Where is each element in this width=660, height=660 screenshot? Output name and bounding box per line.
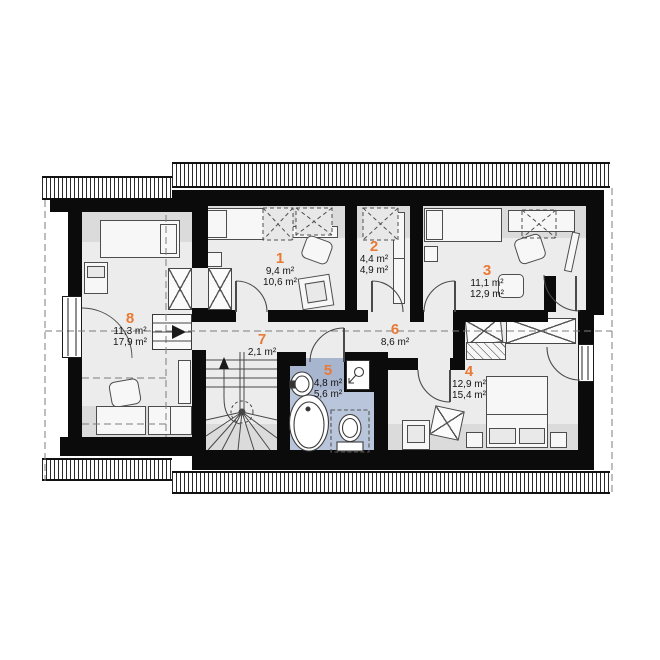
- wall-segment: [268, 310, 368, 322]
- closet-x-right: [208, 268, 232, 310]
- wall-segment: [172, 190, 604, 206]
- room-number: 7: [248, 332, 276, 347]
- room-4-label: 4 12,9 m² 15,4 m²: [452, 364, 486, 401]
- nightstand: [550, 432, 567, 448]
- room-area: 5,6 m²: [314, 389, 342, 400]
- room-area: 11,3 m²: [113, 326, 147, 337]
- wall-segment: [192, 310, 236, 322]
- window: [62, 296, 82, 358]
- balcony-window: [578, 344, 594, 382]
- wall-segment: [60, 437, 198, 456]
- blanket-line: [486, 414, 548, 415]
- room-number: 6: [381, 322, 409, 337]
- wardrobe-divider: [170, 406, 171, 435]
- desk-chair: [108, 378, 142, 409]
- room-7-label: 7 2,1 m²: [248, 332, 276, 358]
- wall-segment: [586, 206, 604, 315]
- wall-segment: [290, 352, 306, 366]
- eaves-hatch-bottom-main: [172, 471, 610, 494]
- wall-segment: [410, 206, 423, 310]
- room-number: 2: [360, 239, 388, 254]
- room-area: 4,9 m²: [360, 265, 388, 276]
- room-area: 12,9 m²: [470, 289, 504, 300]
- desk: [96, 406, 146, 435]
- room-area: 8,6 m²: [381, 337, 409, 348]
- room-number: 1: [263, 251, 297, 266]
- wall-segment: [374, 352, 388, 450]
- wall-segment: [345, 206, 357, 310]
- wall-segment: [68, 198, 82, 296]
- bed-pillow: [426, 210, 443, 240]
- room-number: 4: [452, 364, 486, 379]
- room-6-label: 6 8,6 m²: [381, 322, 409, 348]
- stair-flight-box: [152, 314, 192, 350]
- wall-segment: [578, 310, 594, 322]
- bedside-table: [424, 246, 438, 262]
- bed-pillow: [160, 224, 177, 254]
- bed-pillow: [519, 428, 545, 444]
- wall-segment: [192, 350, 206, 450]
- eaves-hatch-top-wing: [42, 176, 172, 200]
- armchair-seat: [407, 425, 425, 443]
- bed-pillow: [207, 210, 227, 238]
- room-area: 4,4 m²: [360, 254, 388, 265]
- desk: [508, 210, 575, 232]
- dresser-drawer: [87, 266, 105, 278]
- nightstand: [466, 432, 483, 448]
- washing-machine: [346, 360, 370, 390]
- room-2-label: 2 4,4 m² 4,9 m²: [360, 239, 388, 276]
- room-number: 8: [113, 311, 147, 326]
- room-number: 5: [314, 363, 342, 378]
- wall-segment: [578, 382, 594, 450]
- wall-segment: [544, 276, 556, 312]
- tall-cabinet: [178, 360, 191, 404]
- room-area: 15,4 m²: [452, 390, 486, 401]
- wall-segment: [277, 352, 290, 450]
- room-3-label: 3 11,1 m² 12,9 m²: [470, 263, 504, 300]
- wall-segment: [456, 310, 548, 322]
- shelf-unit-divider: [393, 258, 405, 259]
- chair-x: [429, 405, 465, 441]
- wall-segment: [192, 206, 208, 268]
- room-area: 2,1 m²: [248, 347, 276, 358]
- room-8-label: 8 11,3 m² 17,9 m²: [113, 311, 147, 348]
- wall-segment: [192, 450, 594, 470]
- room-area: 9,4 m²: [263, 266, 297, 277]
- closet-x-left: [168, 268, 192, 310]
- room-area: 17,9 m²: [113, 337, 147, 348]
- eaves-hatch-bottom-wing: [42, 458, 172, 481]
- wall-segment: [388, 358, 418, 370]
- bed-pillow: [489, 428, 516, 444]
- room-area: 11,1 m²: [470, 278, 504, 289]
- armchair-seat: [305, 281, 328, 304]
- room-area: 10,6 m²: [263, 277, 297, 288]
- room-area: 12,9 m²: [452, 379, 486, 390]
- eaves-hatch-top-main: [172, 162, 610, 188]
- room-number: 3: [470, 263, 504, 278]
- room-1-label: 1 9,4 m² 10,6 m²: [263, 251, 297, 288]
- room-5-label: 5 4,8 m² 5,6 m²: [314, 363, 342, 400]
- slatted-shelf: [466, 342, 506, 360]
- floor-plan: 1 9,4 m² 10,6 m² 2 4,4 m² 4,9 m² 3 11,1 …: [0, 0, 660, 660]
- bedside-shelf: [207, 252, 222, 267]
- wall-segment: [410, 310, 424, 322]
- room-area: 4,8 m²: [314, 378, 342, 389]
